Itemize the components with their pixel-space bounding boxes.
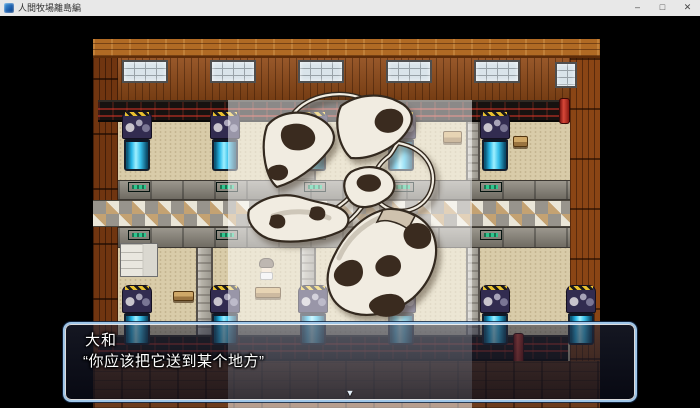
minimize-icon[interactable]: –: [625, 0, 650, 16]
close-icon[interactable]: ✕: [675, 0, 700, 16]
down-arrow-icon: ▼: [346, 388, 355, 398]
milking-machine: [480, 111, 510, 171]
speaker-name: 大和: [85, 329, 117, 350]
status-panel: [480, 182, 502, 192]
maximize-icon[interactable]: □: [650, 0, 675, 16]
app-icon: [4, 3, 14, 13]
cow-print-bikini-picture: [233, 88, 473, 338]
title-bar: 人間牧場離島編 – □ ✕: [0, 0, 700, 16]
status-panel: [128, 230, 150, 240]
cabinet: [120, 243, 158, 277]
glass-block-window: [210, 60, 256, 83]
app-window: 人間牧場離島編 – □ ✕: [0, 0, 700, 408]
glass-block-window: [555, 62, 577, 88]
glass-block-window: [474, 60, 520, 83]
status-panel: [128, 182, 150, 192]
dialog-text: “你应该把它送到某个地方”: [83, 350, 265, 371]
conveyor-end-cap: [559, 98, 570, 124]
wood-beam-band: [93, 39, 600, 58]
glass-block-window: [298, 60, 344, 83]
glass-block-window: [386, 60, 432, 83]
bench: [173, 291, 194, 301]
message-window[interactable]: 大和 “你应该把它送到某个地方” ▼: [63, 322, 637, 402]
window-controls: – □ ✕: [625, 0, 700, 16]
stool: [513, 136, 528, 147]
game-viewport[interactable]: 大和 “你应该把它送到某个地方” ▼: [0, 16, 700, 408]
milking-machine: [122, 111, 152, 171]
status-panel: [480, 230, 502, 240]
window-title: 人間牧場離島編: [18, 0, 81, 16]
glass-block-window: [122, 60, 168, 83]
